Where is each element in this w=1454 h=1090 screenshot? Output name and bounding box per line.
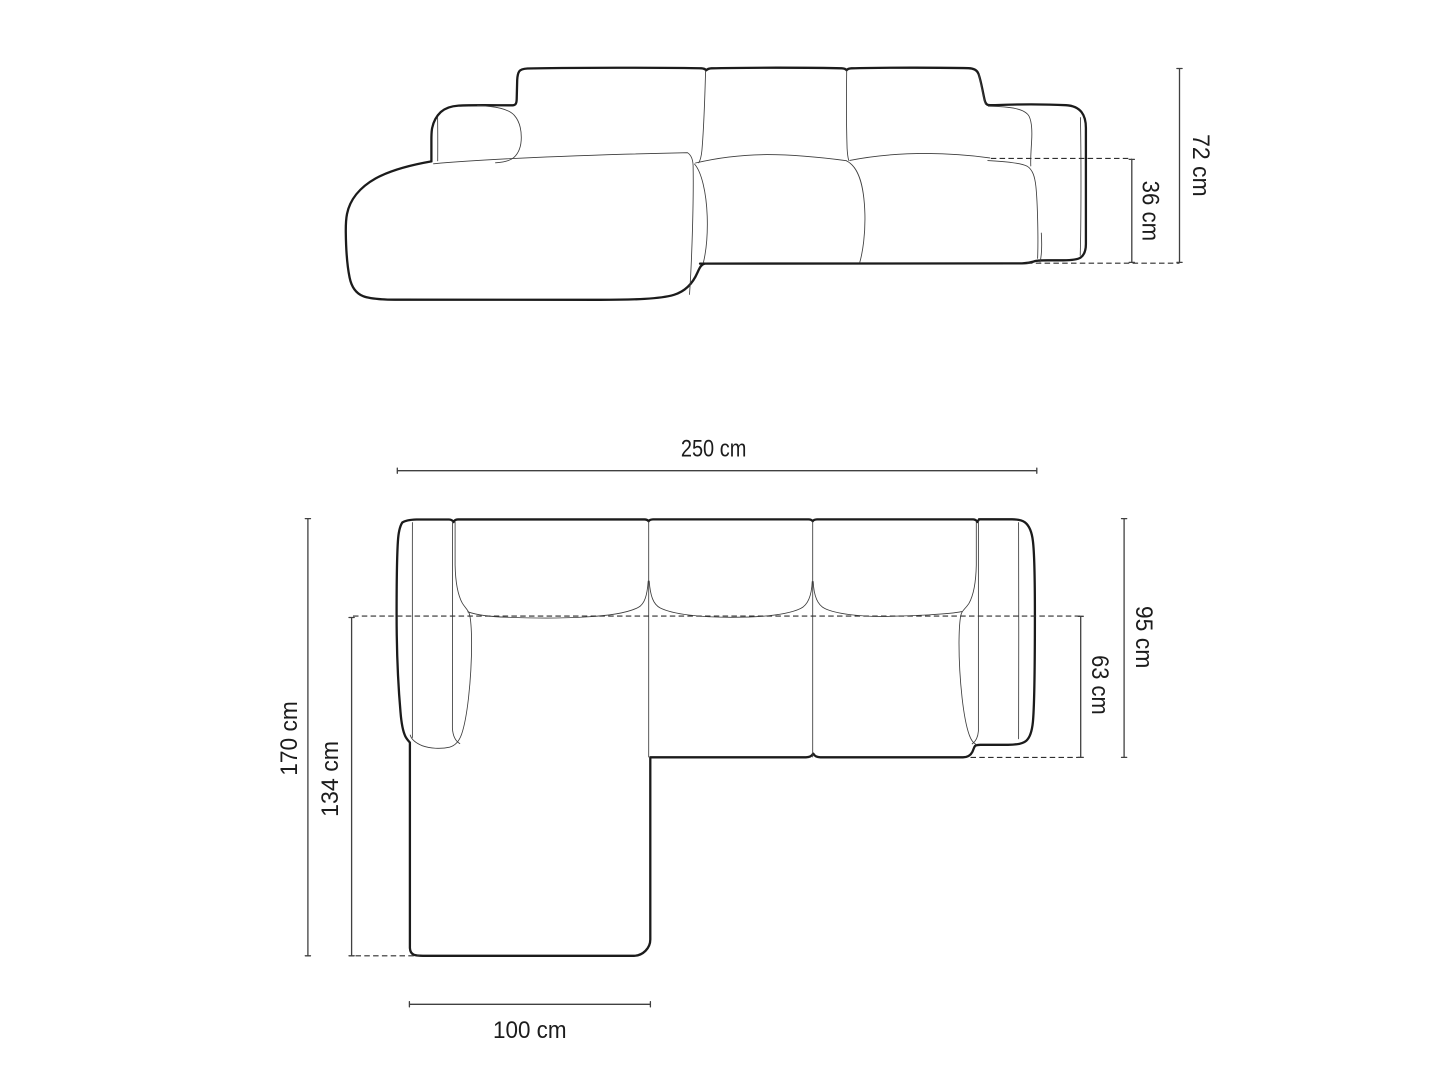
svg-text:63 cm: 63 cm bbox=[1086, 655, 1113, 715]
svg-text:170 cm: 170 cm bbox=[276, 701, 303, 776]
svg-text:36 cm: 36 cm bbox=[1137, 181, 1164, 242]
svg-text:100 cm: 100 cm bbox=[493, 1017, 567, 1044]
svg-text:134 cm: 134 cm bbox=[317, 741, 344, 817]
svg-text:72 cm: 72 cm bbox=[1187, 134, 1214, 197]
svg-text:250 cm: 250 cm bbox=[681, 436, 747, 463]
svg-text:95 cm: 95 cm bbox=[1130, 606, 1157, 669]
